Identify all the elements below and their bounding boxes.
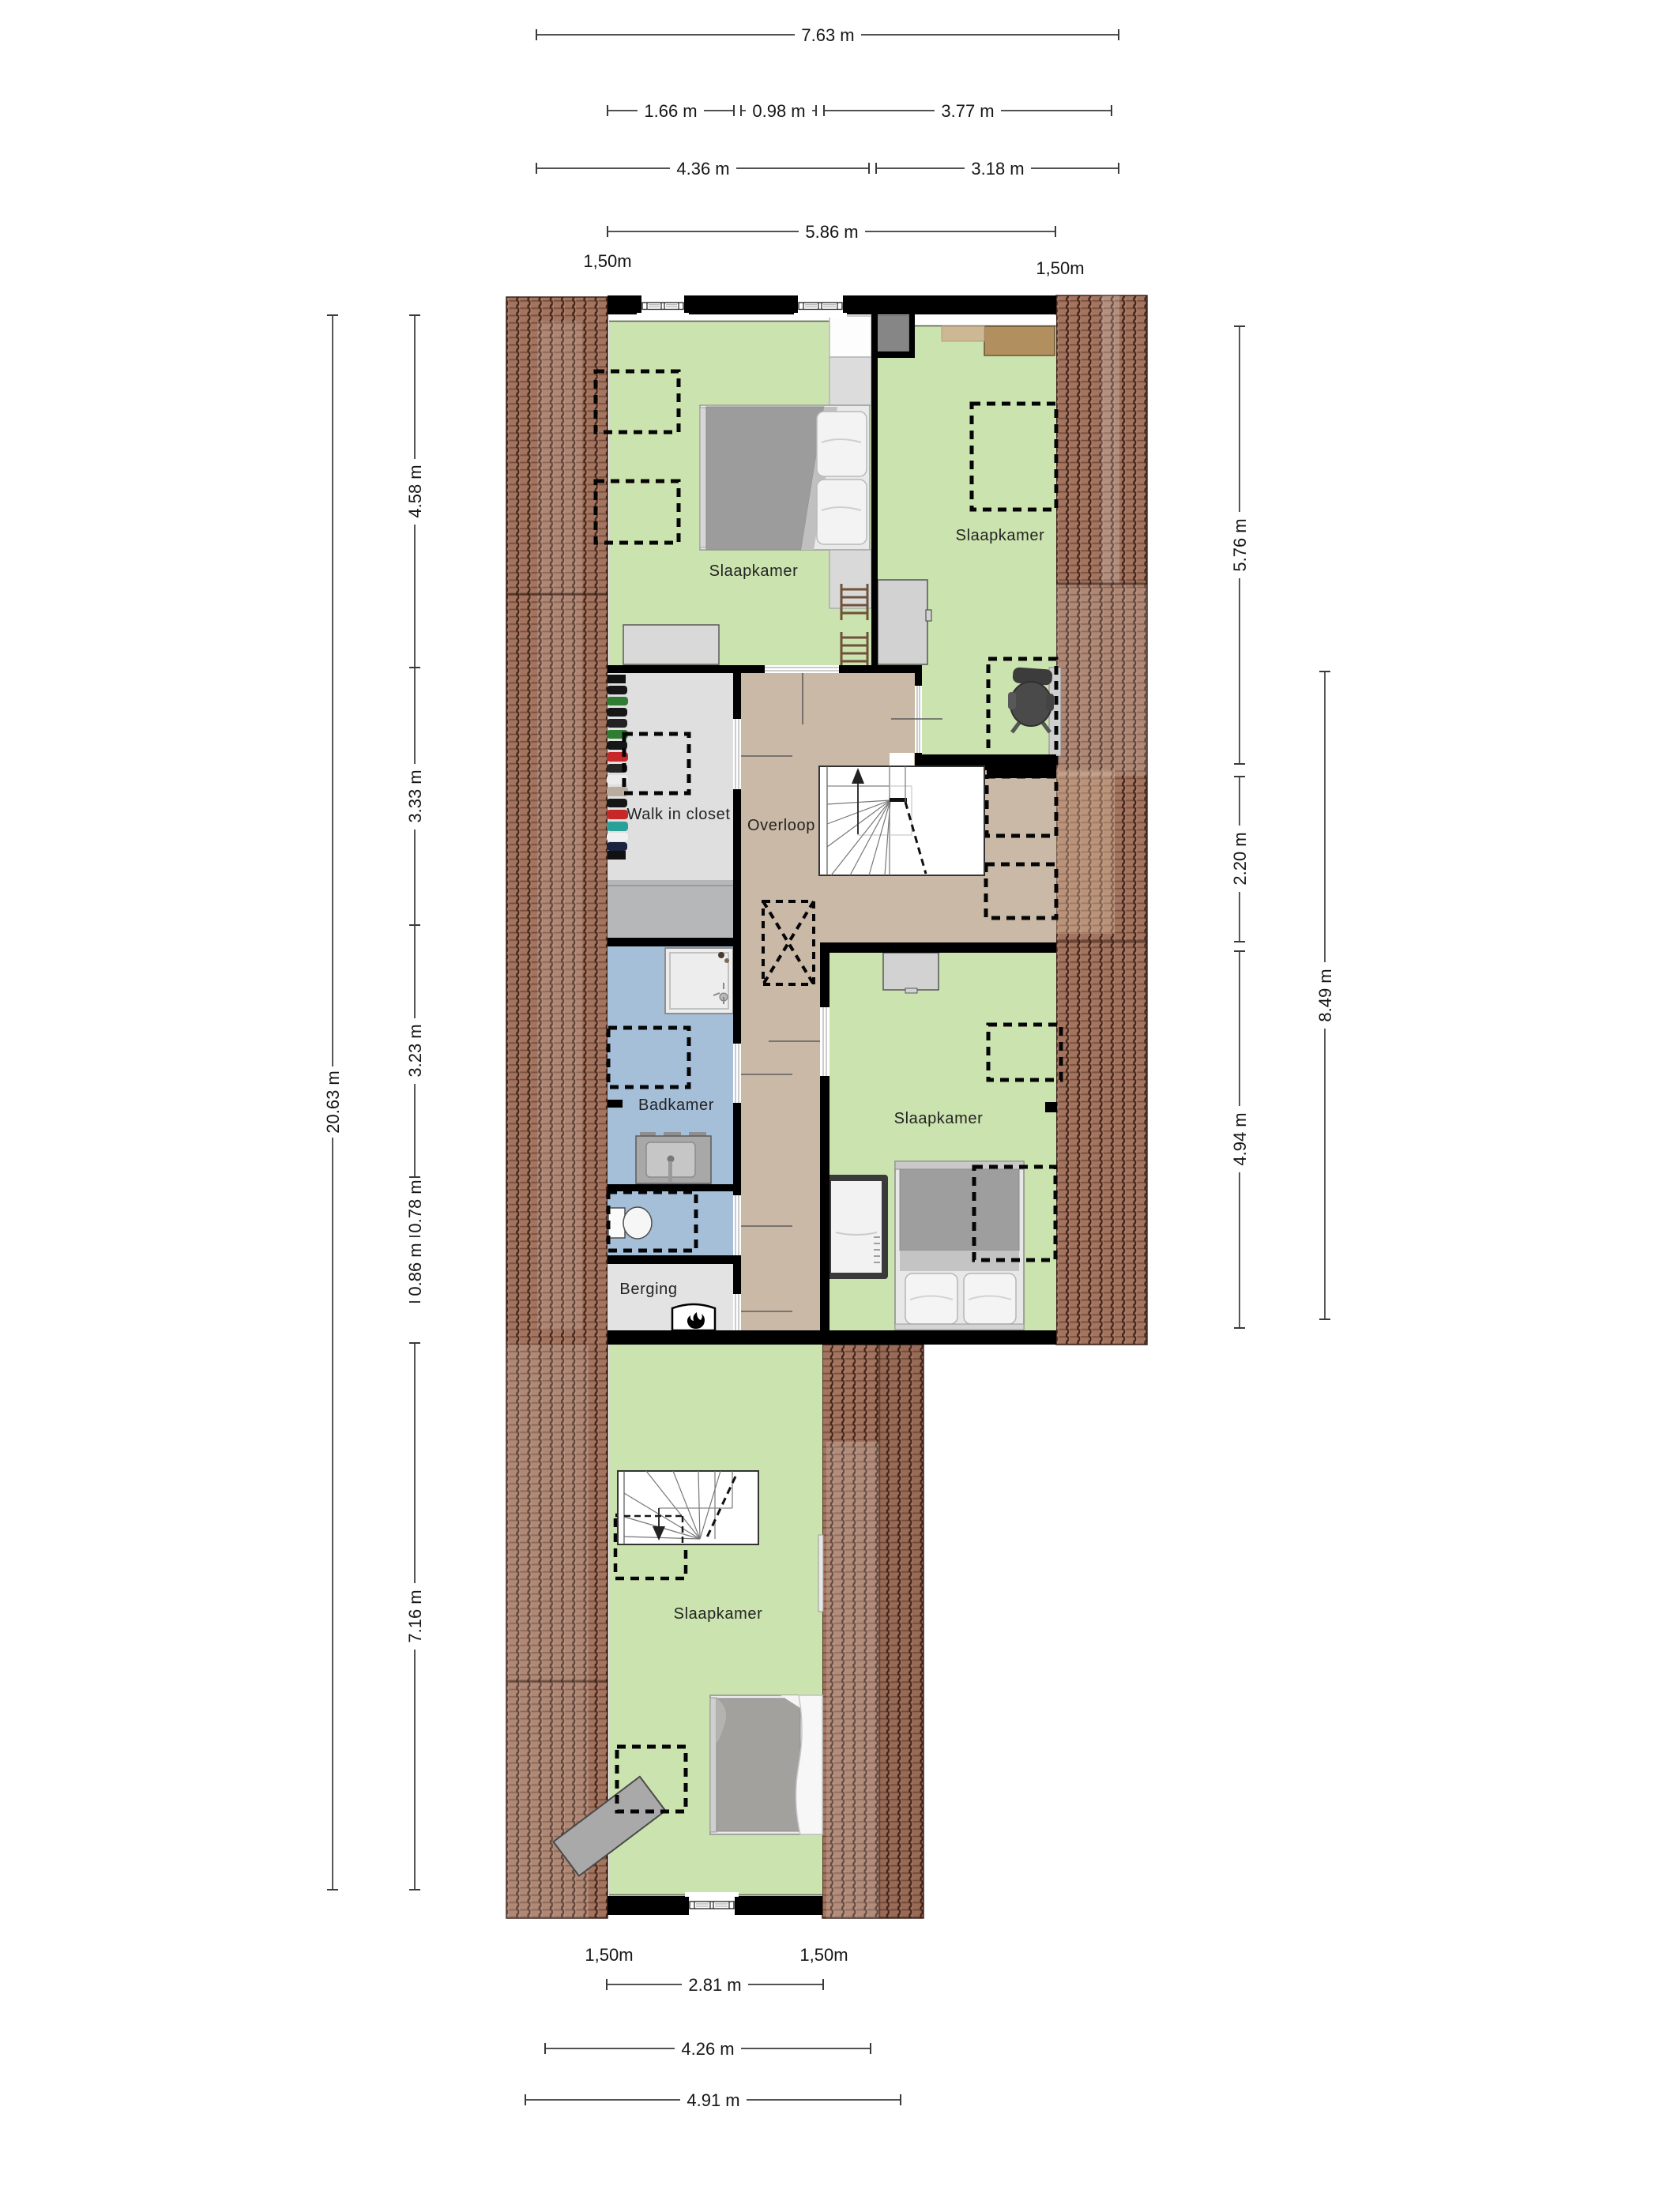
svg-text:1,50m: 1,50m [585,1945,633,1965]
svg-text:1,50m: 1,50m [1036,258,1084,278]
svg-text:0.98 m: 0.98 m [752,101,805,121]
svg-text:Berging: Berging [619,1281,677,1298]
svg-text:3.77 m: 3.77 m [941,101,994,121]
svg-text:4.91 m: 4.91 m [687,2090,739,2110]
svg-text:3.23 m: 3.23 m [405,1024,425,1077]
svg-text:2.81 m: 2.81 m [688,1975,741,1995]
svg-text:1,50m: 1,50m [583,251,631,271]
svg-text:4.26 m: 4.26 m [681,2039,734,2059]
svg-text:Overloop: Overloop [747,817,815,834]
svg-text:0.86 m: 0.86 m [405,1243,425,1296]
svg-text:3.33 m: 3.33 m [405,769,425,822]
svg-text:4.58 m: 4.58 m [405,465,425,517]
svg-text:5.76 m: 5.76 m [1230,518,1250,571]
svg-text:5.86 m: 5.86 m [805,222,858,242]
svg-text:0.78 m: 0.78 m [405,1179,425,1232]
svg-text:7.16 m: 7.16 m [405,1589,425,1642]
svg-text:Walk in closet: Walk in closet [626,806,730,823]
svg-text:Slaapkamer: Slaapkamer [956,527,1045,544]
svg-text:4.36 m: 4.36 m [676,159,729,179]
svg-text:8.49 m: 8.49 m [1315,969,1335,1021]
svg-text:Slaapkamer: Slaapkamer [674,1605,763,1623]
svg-text:Slaapkamer: Slaapkamer [709,562,799,580]
svg-text:Badkamer: Badkamer [638,1097,714,1114]
svg-text:Slaapkamer: Slaapkamer [894,1110,984,1127]
svg-text:2.20 m: 2.20 m [1230,832,1250,885]
svg-text:4.94 m: 4.94 m [1230,1112,1250,1165]
svg-text:1.66 m: 1.66 m [644,101,697,121]
svg-text:1,50m: 1,50m [799,1945,848,1965]
svg-text:3.18 m: 3.18 m [971,159,1024,179]
svg-text:7.63 m: 7.63 m [801,25,854,45]
svg-text:20.63 m: 20.63 m [323,1070,343,1134]
